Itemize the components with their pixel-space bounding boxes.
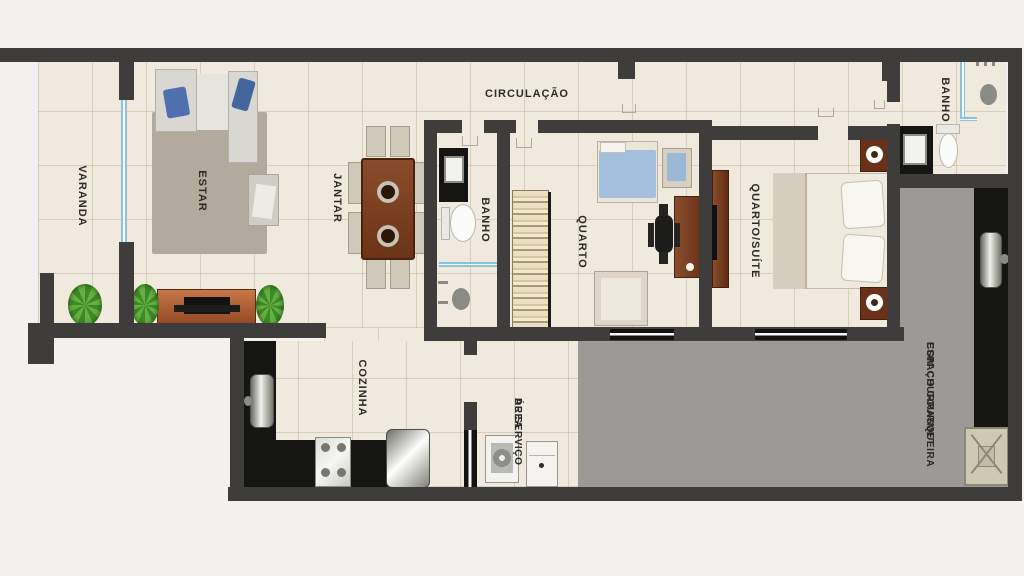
wall-varanda-stub-bottom xyxy=(119,242,134,325)
single-bed-blanket xyxy=(599,150,656,198)
door-mark xyxy=(874,100,885,109)
varanda-glass-wall xyxy=(121,100,127,242)
floor-passage xyxy=(324,328,424,342)
sofa-gap xyxy=(197,74,228,130)
cooktop-burner xyxy=(321,443,330,452)
quarto-armchair-cushion xyxy=(601,278,641,320)
suite-window xyxy=(755,329,847,340)
office-chair-arm xyxy=(648,223,654,247)
office-chair-base xyxy=(659,252,668,264)
bedside-cushion xyxy=(667,153,686,181)
double-bed-pillow xyxy=(840,234,885,284)
wall-corridor-c xyxy=(538,120,712,133)
quarto-window xyxy=(610,329,674,340)
single-bed-pillow xyxy=(600,142,626,153)
bath1-toilet-tank xyxy=(441,207,450,240)
double-bed-pillow xyxy=(840,180,885,230)
bath2-shower-head xyxy=(980,84,997,105)
towel-bar xyxy=(438,281,448,284)
desk-knob xyxy=(686,263,694,271)
water-heater xyxy=(250,374,274,428)
sofa-pillow-left xyxy=(163,86,191,119)
wall-bath1-left xyxy=(424,120,437,341)
room-label-banho-social: BANHO xyxy=(476,197,492,242)
wall-service-divider-a xyxy=(464,341,477,355)
room-label-jantar: JANTAR xyxy=(328,173,344,223)
wall-top xyxy=(0,48,1022,62)
wall-suite-right-b xyxy=(887,124,900,341)
place-setting xyxy=(377,181,399,203)
wall-bottom-left xyxy=(28,323,326,338)
door-mark xyxy=(462,136,478,146)
gourmet-counter xyxy=(974,188,1008,428)
bath1-toilet-bowl xyxy=(450,204,476,242)
plant xyxy=(131,284,159,326)
tank-drain xyxy=(539,463,544,468)
wall-service-divider-b xyxy=(464,402,477,430)
wall-bottom xyxy=(228,487,1022,501)
bath1-shower-drain xyxy=(452,288,470,310)
floor-plan: VARANDA ESTAR JANTAR CIRCULAÇÃO BANHO QU… xyxy=(0,0,1024,576)
wall-bath1-right xyxy=(497,131,510,341)
door-mark xyxy=(516,138,532,148)
plant xyxy=(256,285,284,326)
wall-corridor-b xyxy=(484,120,516,133)
room-label-line: COM CHURRASQUEIRA xyxy=(922,342,937,467)
door-mark xyxy=(622,104,636,113)
office-chair-base xyxy=(659,204,668,216)
cooktop xyxy=(315,437,351,487)
water-heater-valve xyxy=(244,396,252,406)
double-bed-blanket xyxy=(773,173,807,289)
room-label-cozinha: COZINHA xyxy=(353,359,369,416)
bath1-shower-glass xyxy=(439,262,506,267)
dining-chair xyxy=(366,258,386,289)
wall-entry-stub xyxy=(618,62,635,79)
wall-right xyxy=(1008,48,1022,501)
wall-quarto-suite xyxy=(699,131,712,341)
bath2-sink xyxy=(903,134,927,165)
office-chair-arm xyxy=(674,223,680,247)
wall-entry-stub xyxy=(882,62,899,81)
wardrobe-rail xyxy=(548,192,551,328)
room-label-line: DE SERVIÇO xyxy=(510,398,525,466)
plant xyxy=(68,284,102,326)
door-mark xyxy=(818,108,834,117)
wall-suite-top-a xyxy=(712,126,818,140)
cooktop-burner xyxy=(337,468,346,477)
tank-edge xyxy=(529,455,555,456)
dining-chair xyxy=(348,162,362,204)
dining-chair xyxy=(390,126,410,157)
wall-corridor-a xyxy=(424,120,462,133)
cooktop-burner xyxy=(337,443,346,452)
sideboard-tv-base xyxy=(174,305,240,312)
cooktop-burner xyxy=(321,468,330,477)
gourmet-floor-side xyxy=(900,188,974,341)
room-label-varanda: VARANDA xyxy=(73,165,89,226)
fridge xyxy=(386,429,430,488)
wall-bottom-left-step xyxy=(28,338,54,364)
towel-bar xyxy=(438,301,448,304)
wall-kitchen-left xyxy=(230,338,244,501)
wall-bath2-bottom xyxy=(900,174,1008,188)
grill-cylinder xyxy=(980,232,1002,288)
room-label-quarto: QUARTO xyxy=(573,215,589,268)
nightstand-lamp xyxy=(866,146,883,163)
place-setting xyxy=(377,225,399,247)
wardrobe xyxy=(512,190,549,329)
office-chair-seat xyxy=(655,215,673,253)
dining-chair xyxy=(366,126,386,157)
service-sliding-door xyxy=(464,430,477,487)
dining-chair xyxy=(348,212,362,254)
nightstand-lamp xyxy=(866,294,883,311)
bath1-sink xyxy=(444,156,464,183)
bath2-shower-glass-return xyxy=(960,117,977,121)
dining-chair xyxy=(390,258,410,289)
room-label-banho-suite: BANHO xyxy=(936,77,952,122)
wall-varanda-pillar xyxy=(40,273,54,325)
room-label-suite: QUARTO/SUÍTE xyxy=(746,184,762,279)
wall-varanda-stub-top xyxy=(119,62,134,100)
room-label-circulacao: CIRCULAÇÃO xyxy=(485,87,569,103)
room-label-estar: ESTAR xyxy=(193,170,209,211)
bath2-toilet-bowl xyxy=(939,133,958,168)
bath2-shower-glass xyxy=(960,62,965,120)
gourmet-floor-main xyxy=(578,341,1008,487)
